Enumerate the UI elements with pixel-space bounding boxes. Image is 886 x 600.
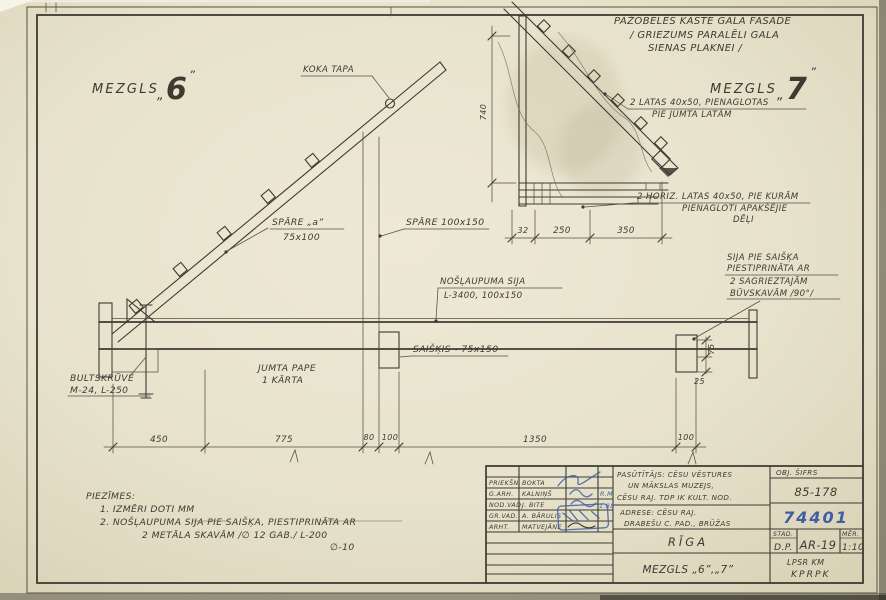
node6-quote-open: „ — [157, 88, 166, 103]
label-spare-a-size: 75x100 — [283, 232, 320, 243]
sheet-code: AR-19 — [799, 538, 837, 552]
name-1: BOKTA — [522, 480, 545, 487]
address-line2: DRABEŠU C. PAD., BRŪŽAS — [624, 519, 731, 528]
label-horiz-2: PIENAGLOTI APAKŠĒJIE — [682, 202, 788, 214]
scale-label: MĒR. — [842, 529, 859, 538]
city: RĪGA — [668, 535, 708, 549]
sheet-title: MEZGLS „6”,„7” — [643, 564, 734, 576]
label-sija-1: SIJA PIE SAIŠĶA — [727, 251, 799, 263]
note-4: ∅-10 — [330, 542, 355, 553]
label-spare-a: SPĀRE „a” — [272, 217, 324, 228]
name-4: A. BĀRULIS — [521, 511, 561, 520]
role-4: GR.VAD. — [489, 513, 518, 520]
dim-25: 25 — [694, 377, 705, 386]
address-line1: ADRESE: CĒSU RAJ. — [619, 508, 697, 517]
org-line2: KPRPK — [791, 569, 831, 580]
dim-80: 80 — [364, 433, 375, 442]
dim-250: 250 — [553, 226, 571, 236]
org-line1: LPSR KM — [787, 558, 824, 567]
dim-350: 350 — [617, 226, 635, 236]
name-3: J. BITE — [520, 502, 545, 509]
name-2: KALNIŅŠ — [522, 489, 552, 498]
dim-1350: 1350 — [523, 435, 547, 445]
label-noslaupuma-2: L-3400, 100x150 — [444, 291, 523, 301]
label-bolt-2: M-24, L-250 — [70, 385, 128, 396]
object-code-label: OBJ. ŠIFRS — [776, 468, 818, 477]
heading-line3: SIENAS PLAKNEI / — [648, 43, 743, 54]
dim-450: 450 — [150, 435, 168, 445]
note-2: 2. NOŠĻAUPUMA SIJA PIE SAIŠĶA, PIESTIPRI… — [100, 516, 356, 528]
role-3: NOD.VAD. — [489, 502, 524, 509]
stage-label: STAD. — [773, 531, 793, 538]
dim-100b: 100 — [678, 433, 694, 442]
label-koka-tapa: KOKA TAPA — [303, 65, 354, 75]
label-latas-2: PIE JUMTA LATĀM — [652, 109, 732, 120]
label-sija-2: PIESTIPRINĀTA AR — [727, 263, 810, 274]
drawing-sheet: PAŽOBELES KASTE GALA FASĀDĒ / GRIEZUMS P… — [0, 0, 886, 600]
label-spare-b: SPĀRE 100x150 — [406, 217, 484, 228]
dim-740: 740 — [479, 104, 488, 120]
stage-value: D.P. — [774, 542, 793, 553]
dim-775: 775 — [275, 435, 293, 445]
node6-quote-close: ” — [189, 68, 196, 82]
label-pape-1: JUMTA PAPE — [256, 363, 316, 374]
blueprint-scan: PAŽOBELES KASTE GALA FASĀDĒ / GRIEZUMS P… — [0, 0, 886, 600]
role-5: ARHT. — [488, 524, 510, 531]
label-latas-1: 2 LATAS 40x50, PIENAGLOTAS — [630, 98, 769, 108]
label-bolt-1: BULTSKRŪVE — [70, 373, 134, 384]
note-3: 2 METĀLA SKAVĀM /∅ 12 GAB./ L-200 — [142, 530, 328, 541]
heading-line1: PAŽOBELES KASTE GALA FASĀDĒ — [614, 14, 792, 27]
object-code: 85-178 — [794, 485, 837, 499]
label-noslaupuma-1: NOŠĻAUPUMA SIJA — [440, 275, 526, 287]
dim-32: 32 — [518, 226, 529, 235]
scale-value: 1:10 — [842, 542, 864, 553]
role-2: G.ARH. — [489, 491, 514, 498]
label-pape-2: 1 KĀRTA — [262, 375, 303, 386]
client-line1: PASŪTĪTĀJS: CĒSU VĒSTURES — [617, 470, 732, 479]
node6-title-word: MEZGLS — [92, 82, 159, 97]
label-saiskis: SAIŠĶIS - 75x150 — [413, 343, 498, 355]
role-1: PRIEKŠN. — [489, 478, 521, 487]
node7-quote-open: „ — [777, 88, 786, 103]
label-horiz-1: 2 HORIZ. LATAS 40x50, PIE KURĀM — [637, 191, 799, 202]
node7-number: 7 — [786, 72, 807, 107]
node7-quote-close: ” — [810, 65, 817, 79]
dim-100a: 100 — [382, 433, 398, 442]
heading-line2: / GRIEZUMS PARALĒLI GALA — [629, 28, 779, 41]
dim-75: 75 — [707, 344, 716, 355]
date-2: R.M — [600, 491, 613, 498]
project-number: 74401 — [783, 508, 849, 527]
notes-title: PIEZĪMES: — [86, 491, 135, 502]
label-sija-4: BŪVSKAVĀM /90°/ — [730, 288, 814, 299]
name-5: MATVEJĀNE — [522, 522, 562, 531]
label-sija-3: 2 SAGRIEZTAJĀM — [730, 276, 808, 287]
node7-title-word: MEZGLS — [710, 82, 777, 97]
client-line2: UN MĀKSLAS MUZEJS, — [628, 481, 714, 490]
client-line3: CĒSU RAJ. TDP IK KULT. NOD. — [617, 493, 732, 502]
label-horiz-3: DĒĻI — [733, 214, 754, 225]
note-1: 1. IZMĒRI DOTI MM — [100, 504, 195, 515]
node6-number: 6 — [166, 72, 187, 107]
